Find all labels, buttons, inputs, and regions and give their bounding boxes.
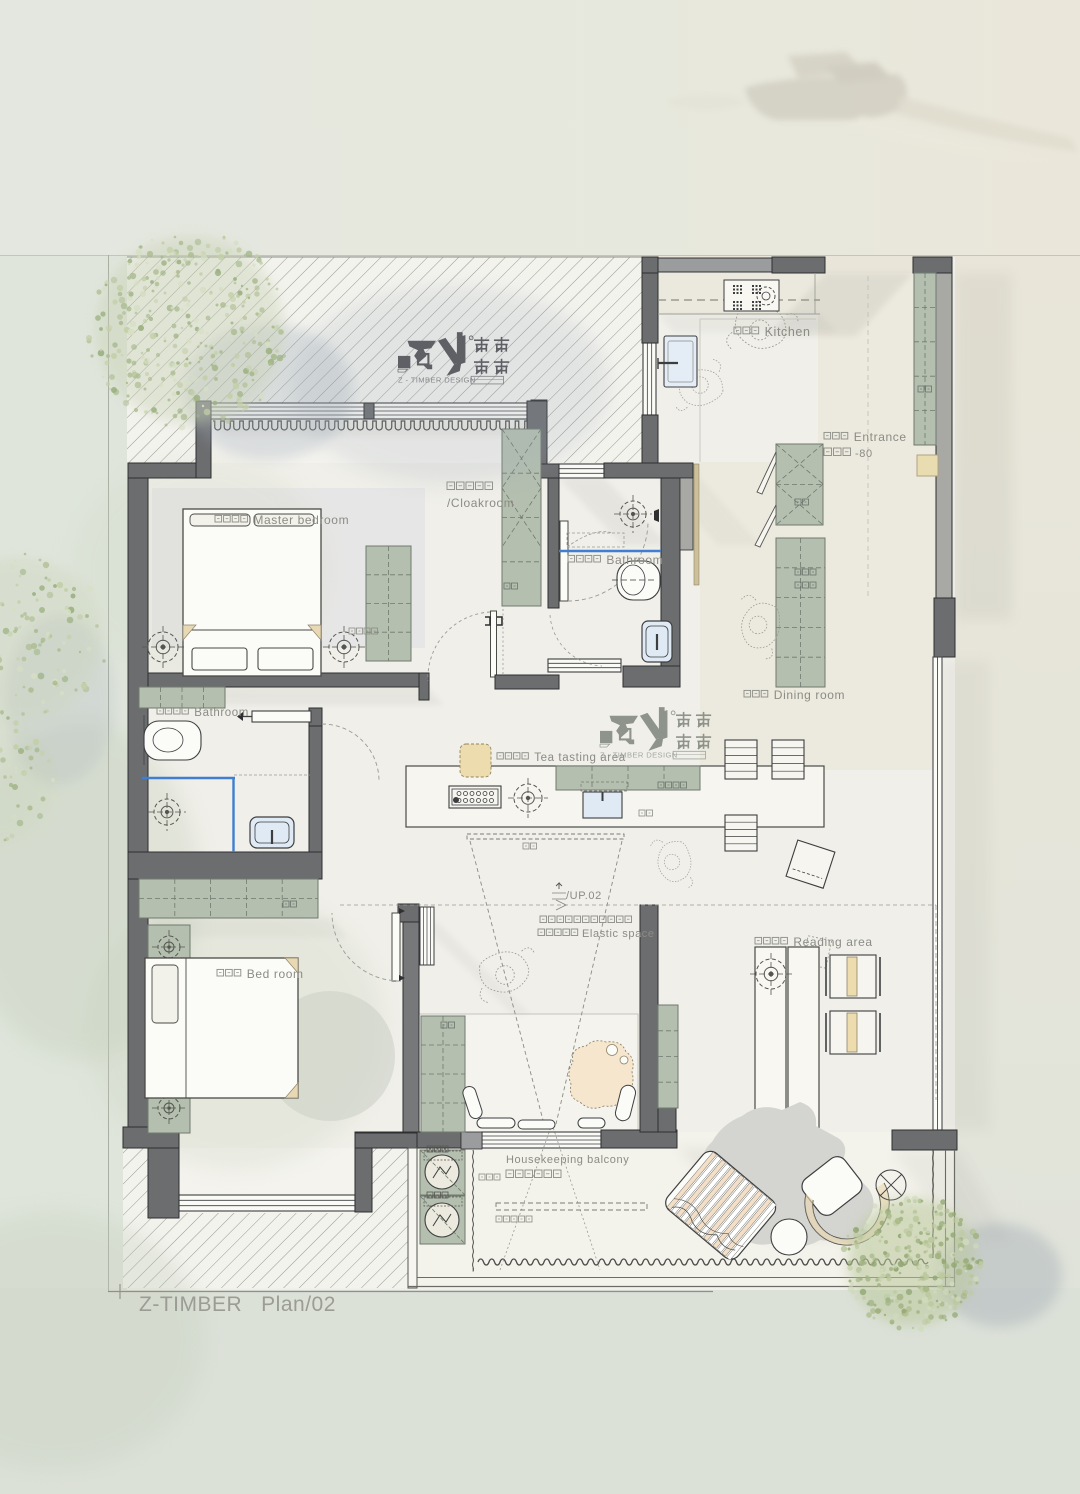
svg-text:Kitchen: Kitchen — [765, 325, 811, 339]
svg-text:Reading area: Reading area — [793, 935, 872, 949]
svg-text:-80: -80 — [855, 448, 873, 460]
svg-text:Bathroom: Bathroom — [606, 553, 663, 567]
svg-text:Dining room: Dining room — [774, 688, 845, 702]
svg-text:Master bedroom: Master bedroom — [253, 513, 349, 527]
svg-text:Bed room: Bed room — [247, 967, 304, 981]
svg-text:/UP.02: /UP.02 — [566, 890, 602, 902]
svg-text:Z - TIMBER DESIGN: Z - TIMBER DESIGN — [398, 376, 476, 385]
svg-text:Tea tasting area: Tea tasting area — [534, 752, 625, 764]
svg-text:Housekeeping balcony: Housekeeping balcony — [506, 1154, 629, 1166]
svg-text:/Cloakroom: /Cloakroom — [447, 496, 514, 510]
svg-text:Elastic space: Elastic space — [582, 928, 655, 940]
svg-text:Z-TIMBER Plan/02: Z-TIMBER Plan/02 — [139, 1293, 336, 1316]
svg-text:Entrance: Entrance — [854, 430, 907, 444]
svg-text:Bathroom: Bathroom — [194, 707, 249, 719]
